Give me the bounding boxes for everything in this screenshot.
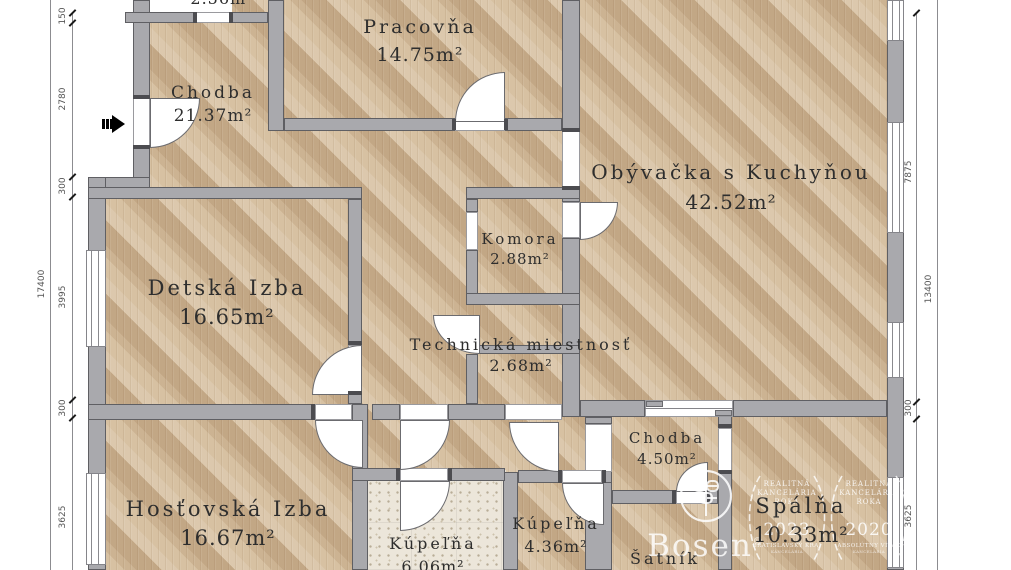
window (887, 122, 904, 233)
door-opening (315, 404, 352, 420)
sliding-door-panel (646, 401, 663, 407)
dimension-text: 300 (904, 386, 914, 430)
door-opening (562, 131, 580, 188)
door-jamb (558, 470, 562, 483)
window (86, 250, 106, 347)
room-label-spalna: Spálňa 10.33m² (753, 492, 848, 551)
dimension-text: 2780 (58, 77, 68, 121)
door-jamb (348, 391, 362, 395)
room-label-satnik: Šatník (630, 549, 700, 568)
wall (448, 404, 505, 420)
wall (284, 118, 455, 131)
door-opening (400, 404, 448, 420)
wall (88, 404, 315, 420)
wall (562, 238, 580, 417)
wall (518, 470, 562, 483)
dimension-line (72, 13, 73, 570)
door-jamb (229, 12, 233, 23)
wall (733, 400, 887, 417)
door-jamb (396, 468, 400, 481)
door-jamb (504, 119, 508, 130)
door-opening (196, 12, 230, 23)
dimension-line (937, 0, 938, 570)
outside-area (88, 0, 133, 177)
door-jamb (562, 128, 580, 132)
sliding-door-opening (645, 400, 733, 417)
door-jamb (448, 468, 452, 481)
wall (352, 468, 400, 481)
room-label-pracovna: Pracovňa 14.75m² (363, 14, 477, 69)
room-label-cut: 2.56m² (190, 0, 253, 8)
watermark-logo (678, 468, 734, 528)
room-label-chodba-small: Chodba 4.50m² (629, 428, 705, 470)
dimension-text: 150 (58, 0, 68, 38)
dimension-text: 300 (58, 164, 68, 208)
door-jamb (718, 424, 732, 428)
wall (466, 250, 478, 295)
door-jamb (452, 119, 456, 130)
dimension-line (916, 13, 917, 570)
floor-plan: Bosen® REALITNÁ KANCELÁRIA ROKA 2023 BRA… (0, 0, 1011, 570)
wall (505, 118, 562, 131)
wall (580, 400, 645, 417)
wall (372, 404, 400, 420)
door-opening (718, 428, 732, 472)
window (887, 322, 904, 378)
room-label-technicka: Technická miestnosť 2.68m² (410, 335, 633, 377)
outside-area (904, 0, 1011, 570)
entrance-arrow-icon (102, 115, 128, 133)
sliding-door-rail (645, 408, 733, 409)
dimension-text: 13400 (924, 267, 934, 311)
door-opening (400, 468, 448, 481)
wall (612, 490, 676, 504)
wall (230, 12, 268, 23)
door-jamb (348, 341, 362, 345)
dimension-text: 3625 (58, 495, 68, 539)
dimension-line (50, 0, 51, 570)
room-label-obyvacka: Obývačka s Kuchyňou 42.52m² (591, 157, 871, 217)
door-opening (505, 404, 562, 420)
wall (466, 199, 478, 212)
wall (88, 187, 362, 199)
room-label-kupelna-big: Kúpeľňa 6.06m² (389, 532, 477, 570)
door-opening (562, 202, 580, 238)
door-jamb (672, 490, 676, 504)
door-opening (585, 424, 612, 472)
wall (448, 468, 505, 481)
wall (125, 12, 196, 23)
wall (268, 0, 284, 131)
wall (348, 199, 362, 345)
wall (585, 417, 612, 424)
sliding-door-panel (715, 410, 732, 416)
room-label-hostovska: Hosťovská Izba 16.67m² (126, 495, 331, 554)
room-label-chodba-main: Chodba 21.37m² (171, 82, 255, 128)
window (887, 0, 904, 41)
door-opening (466, 212, 478, 250)
room-label-komora: Komora 2.88m² (481, 229, 558, 270)
door-jamb (193, 12, 197, 23)
room-label-kupelna-small: Kúpeľňa 4.36m² (512, 512, 600, 558)
dimension-text: 17400 (37, 262, 47, 306)
door-jamb (562, 186, 580, 190)
dimension-text: 3995 (58, 275, 68, 319)
door-jamb (602, 470, 606, 483)
room-label-detska: Detská Izba 16.65m² (148, 274, 307, 333)
wall (466, 293, 580, 305)
door-opening (562, 470, 602, 483)
dimension-text: 7875 (904, 150, 914, 194)
door-opening (133, 98, 150, 146)
wall (562, 0, 580, 131)
dimension-text: 300 (58, 386, 68, 430)
door-jamb (133, 145, 150, 149)
door-jamb (133, 95, 150, 99)
bosen-logo-icon (678, 468, 734, 524)
dimension-text: 3625 (904, 494, 914, 538)
window (86, 473, 106, 565)
door-jamb (311, 404, 315, 420)
